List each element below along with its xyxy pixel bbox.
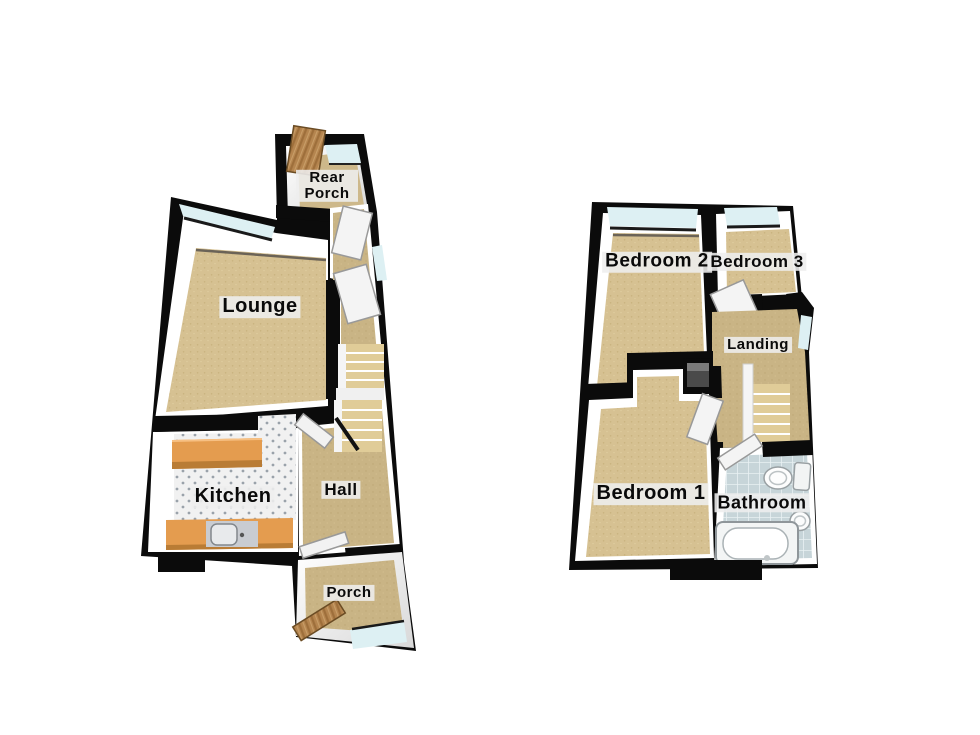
wall xyxy=(762,440,813,457)
kitchen-counter-top xyxy=(172,438,262,469)
staircase xyxy=(334,344,384,452)
bedroom2-window xyxy=(607,207,698,228)
room-label-bedroom2: Bedroom 2 xyxy=(602,252,712,273)
kitchen-counter-sink xyxy=(166,518,293,550)
wall xyxy=(155,414,258,432)
closet xyxy=(683,358,713,392)
wall-pier xyxy=(158,552,205,572)
stair-landing xyxy=(336,388,384,400)
bathtub xyxy=(716,522,798,564)
window-frame-line xyxy=(610,228,696,230)
bedroom3-window xyxy=(724,207,780,226)
window-frame-line xyxy=(727,226,780,227)
room-label-rear-porch: Rear Porch xyxy=(296,170,358,202)
floorplan-canvas: Rear Porch Lounge Kitchen Hall Porch Bed… xyxy=(0,0,980,735)
stair-stringer xyxy=(338,344,346,388)
wall xyxy=(709,366,722,398)
room-label-bathroom: Bathroom xyxy=(715,493,810,512)
room-label-bedroom3: Bedroom 3 xyxy=(707,253,806,271)
sink-bowl xyxy=(211,524,237,545)
rear-porch-window xyxy=(325,144,361,163)
room-label-landing: Landing xyxy=(724,337,792,353)
wall-pier xyxy=(670,560,762,580)
room-label-kitchen: Kitchen xyxy=(192,486,275,508)
floorplan-drawing xyxy=(0,0,980,735)
wall xyxy=(326,280,340,399)
floor-shadow-line xyxy=(613,235,699,236)
ground-floor-plan xyxy=(141,126,416,651)
room-label-lounge: Lounge xyxy=(219,296,300,318)
bath-tap xyxy=(764,555,770,561)
room-label-hall: Hall xyxy=(321,481,360,499)
room-label-bedroom1: Bedroom 1 xyxy=(594,483,709,505)
wall xyxy=(585,382,640,400)
sink-tap xyxy=(240,533,244,537)
room-label-porch: Porch xyxy=(323,585,374,601)
